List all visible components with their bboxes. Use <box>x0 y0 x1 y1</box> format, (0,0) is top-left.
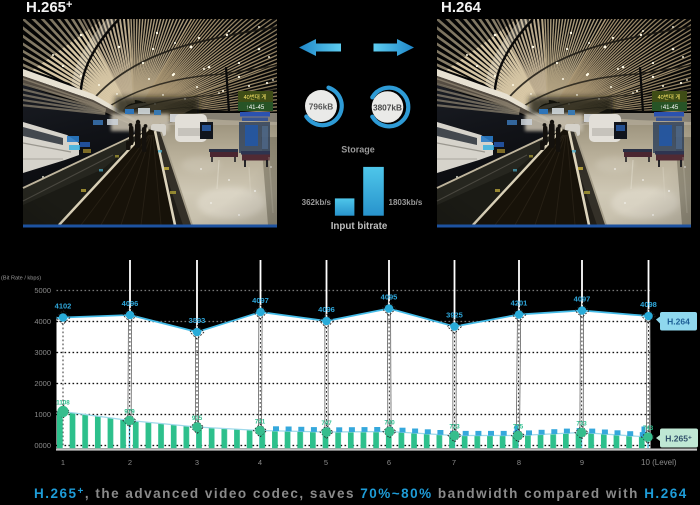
svg-text:4095: 4095 <box>381 293 398 302</box>
svg-text:2000: 2000 <box>34 379 51 388</box>
svg-text:7: 7 <box>452 458 456 467</box>
svg-text:915: 915 <box>192 415 203 422</box>
svg-text:Input bitrate: Input bitrate <box>331 221 388 232</box>
svg-text:H.264: H.264 <box>667 317 690 327</box>
svg-text:4000: 4000 <box>34 317 51 326</box>
svg-text:4102: 4102 <box>55 302 72 311</box>
svg-text:3925: 3925 <box>446 311 463 320</box>
svg-text:H.265+: H.265+ <box>665 434 692 444</box>
svg-text:743: 743 <box>643 425 654 432</box>
svg-text:740: 740 <box>384 420 395 427</box>
svg-text:4096: 4096 <box>318 305 335 314</box>
svg-text:747: 747 <box>321 420 332 427</box>
svg-text:4097: 4097 <box>252 296 269 305</box>
svg-text:796kB: 796kB <box>309 102 333 112</box>
svg-text:0000: 0000 <box>34 441 51 450</box>
svg-text:725: 725 <box>513 424 524 431</box>
svg-text:733: 733 <box>576 421 587 428</box>
svg-text:979: 979 <box>124 409 135 416</box>
svg-text:3807kB: 3807kB <box>373 103 402 113</box>
svg-text:H.265+: H.265+ <box>26 0 72 16</box>
svg-text:1108: 1108 <box>56 400 70 407</box>
svg-text:8: 8 <box>517 458 521 467</box>
svg-text:10 (Level): 10 (Level) <box>641 458 677 467</box>
svg-text:4097: 4097 <box>574 295 591 304</box>
svg-text:6: 6 <box>387 458 391 467</box>
svg-text:2: 2 <box>128 458 132 467</box>
svg-text:4201: 4201 <box>511 299 528 308</box>
svg-text:4098: 4098 <box>640 300 657 309</box>
svg-text:3: 3 <box>195 458 199 467</box>
svg-text:5000: 5000 <box>34 286 51 295</box>
svg-text:H.265+, the advanced video cod: H.265+, the advanced video codec, saves … <box>34 486 688 501</box>
svg-text:4: 4 <box>258 458 262 467</box>
svg-text:(Bit Rate / kbps): (Bit Rate / kbps) <box>1 276 41 282</box>
svg-text:3593: 3593 <box>189 316 206 325</box>
svg-text:3000: 3000 <box>34 348 51 357</box>
svg-text:362kb/s: 362kb/s <box>302 198 332 207</box>
svg-text:741: 741 <box>255 419 266 426</box>
svg-text:4096: 4096 <box>122 299 139 308</box>
svg-text:1: 1 <box>61 458 65 467</box>
svg-text:723: 723 <box>449 424 460 431</box>
svg-text:H.264: H.264 <box>441 0 482 16</box>
svg-text:Storage: Storage <box>341 145 375 155</box>
svg-text:5: 5 <box>324 458 328 467</box>
svg-text:9: 9 <box>580 458 584 467</box>
svg-text:1803kb/s: 1803kb/s <box>389 198 423 207</box>
svg-text:1000: 1000 <box>34 410 51 419</box>
